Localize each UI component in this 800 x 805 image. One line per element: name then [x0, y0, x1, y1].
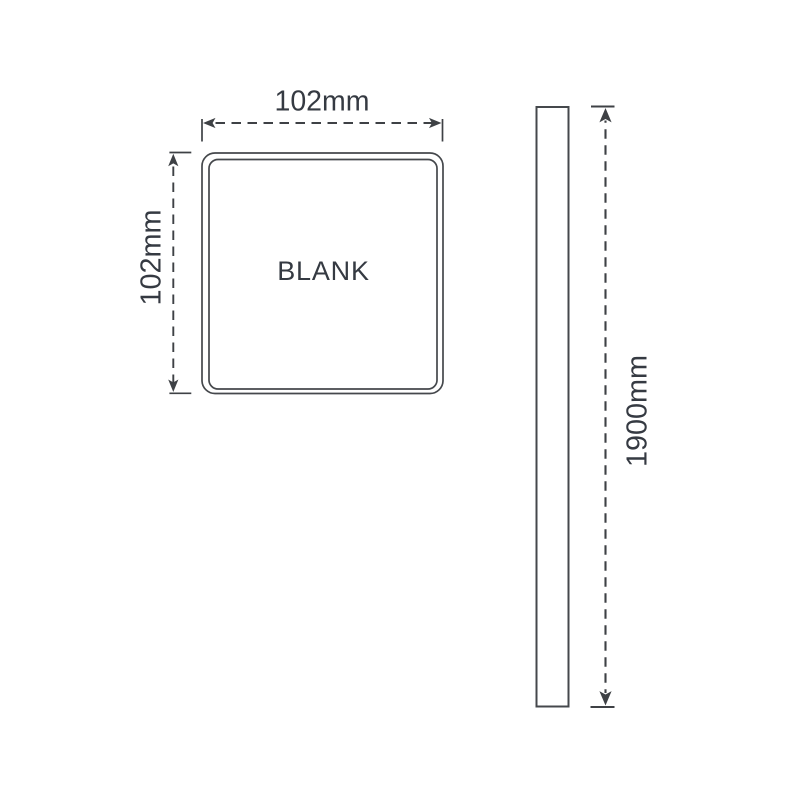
svg-text:BLANK: BLANK — [277, 256, 370, 286]
svg-text:102mm: 102mm — [136, 209, 168, 305]
svg-text:1900mm: 1900mm — [622, 355, 654, 467]
svg-text:102mm: 102mm — [274, 85, 369, 117]
